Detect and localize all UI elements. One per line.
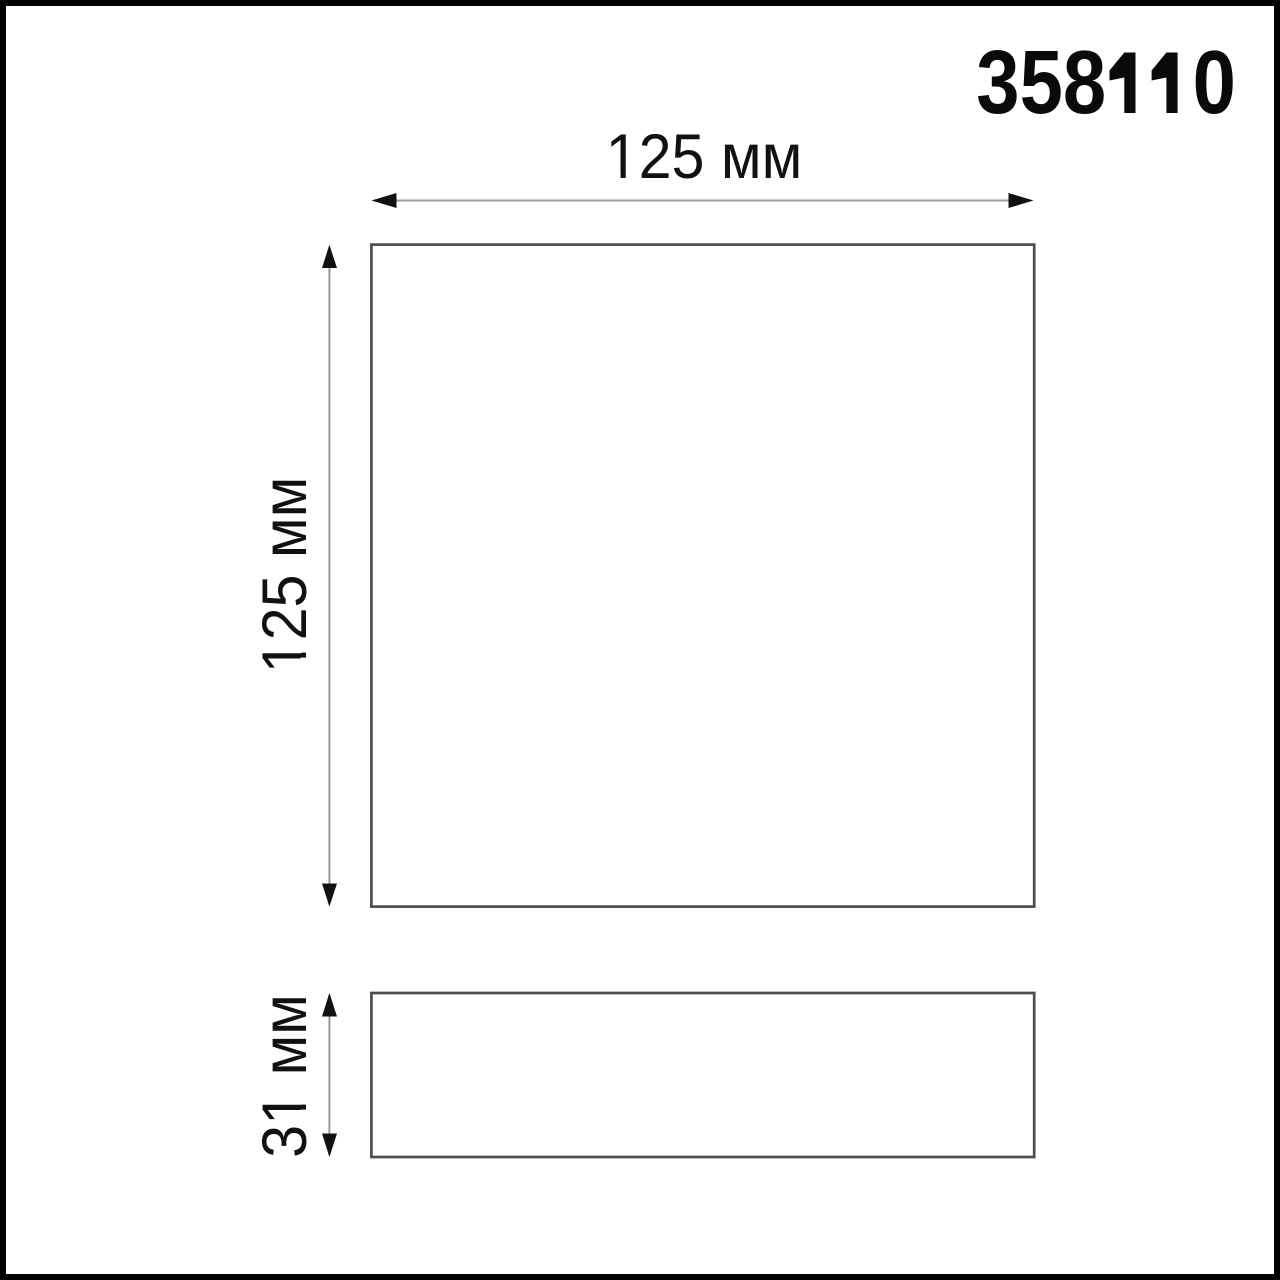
svg-text:31 мм: 31 мм	[249, 994, 319, 1158]
svg-text:358: 358	[976, 32, 1106, 132]
svg-text:125 мм: 125 мм	[249, 477, 319, 674]
svg-text:125 мм: 125 мм	[606, 121, 803, 191]
svg-text:0: 0	[1193, 32, 1236, 132]
